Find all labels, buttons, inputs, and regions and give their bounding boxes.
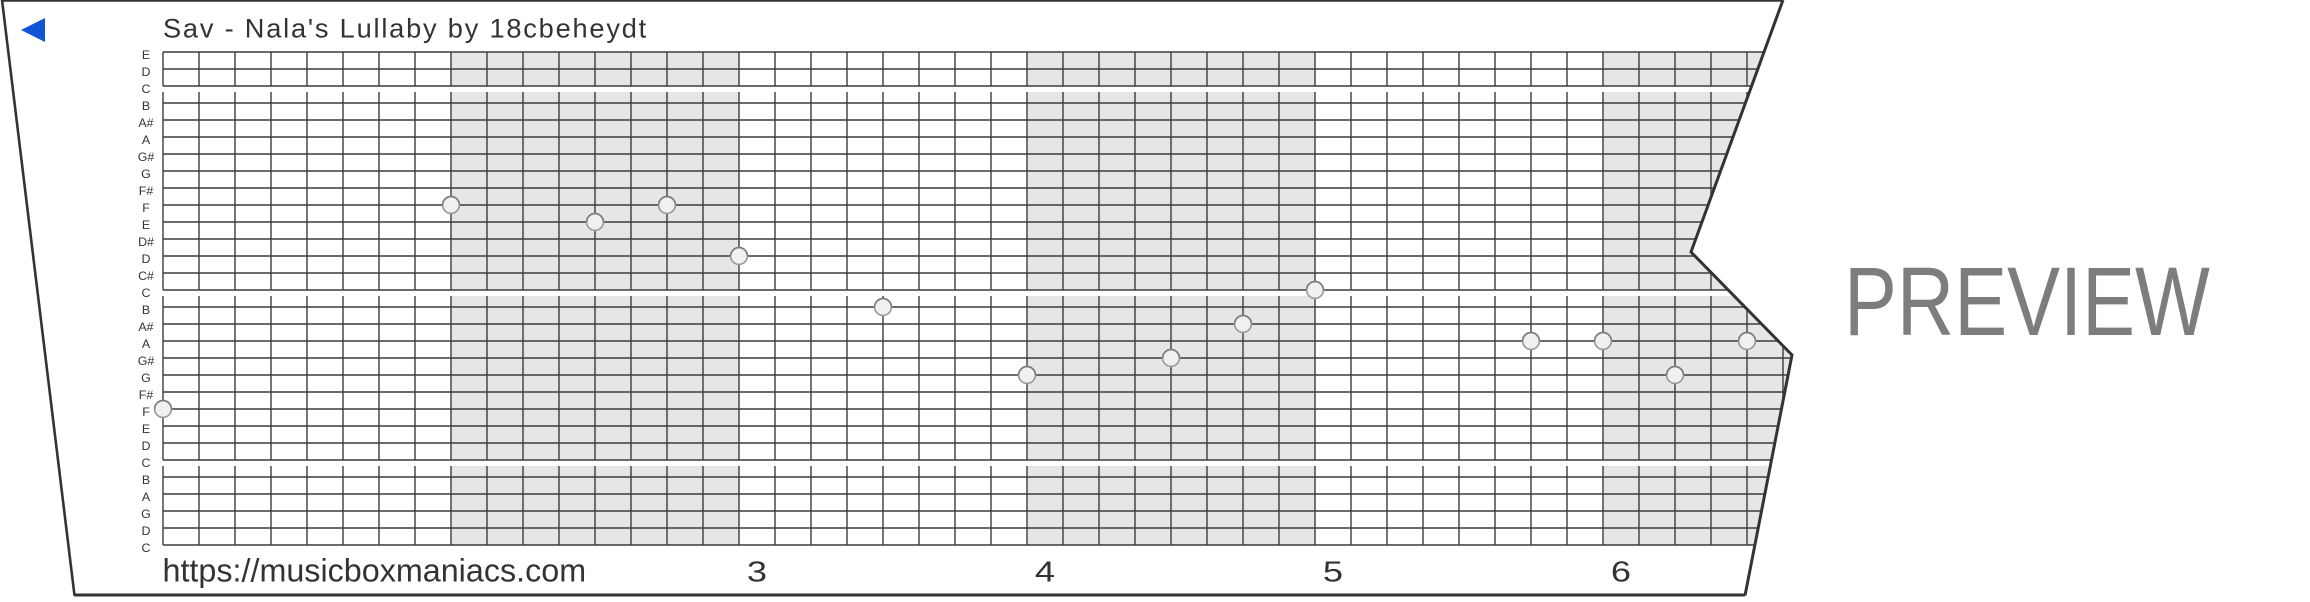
svg-text:G: G	[141, 371, 151, 385]
svg-text:3: 3	[747, 555, 767, 588]
svg-text:4: 4	[1035, 555, 1055, 588]
svg-text:A: A	[142, 337, 151, 351]
svg-text:C: C	[142, 286, 151, 300]
svg-text:https://musicboxmaniacs.com: https://musicboxmaniacs.com	[163, 553, 587, 589]
svg-text:D: D	[142, 252, 151, 266]
svg-text:C: C	[142, 82, 151, 96]
svg-text:D: D	[142, 65, 151, 79]
svg-text:F: F	[142, 201, 150, 215]
svg-text:F#: F#	[139, 184, 154, 198]
svg-text:A: A	[142, 133, 151, 147]
svg-text:D: D	[142, 524, 151, 538]
svg-text:Sav - Nala's Lullaby by 18cbeh: Sav - Nala's Lullaby by 18cbeheydt	[163, 13, 648, 44]
svg-text:C#: C#	[138, 269, 154, 283]
svg-text:B: B	[142, 99, 150, 113]
svg-text:C: C	[142, 541, 151, 555]
svg-text:A: A	[142, 490, 151, 504]
svg-text:E: E	[142, 422, 150, 436]
svg-text:G#: G#	[138, 354, 155, 368]
svg-text:6: 6	[1611, 555, 1631, 588]
svg-text:5: 5	[1323, 555, 1343, 588]
svg-text:E: E	[142, 48, 150, 62]
svg-text:F#: F#	[139, 388, 154, 402]
svg-text:G: G	[141, 167, 151, 181]
svg-text:B: B	[142, 473, 150, 487]
svg-text:D: D	[142, 439, 151, 453]
svg-text:E: E	[142, 218, 150, 232]
svg-text:A#: A#	[138, 320, 153, 334]
svg-text:D#: D#	[138, 235, 154, 249]
svg-text:B: B	[142, 303, 150, 317]
svg-text:C: C	[142, 456, 151, 470]
svg-text:G#: G#	[138, 150, 155, 164]
svg-text:A#: A#	[138, 116, 153, 130]
svg-text:PREVIEW: PREVIEW	[1844, 247, 2210, 356]
svg-text:F: F	[142, 405, 150, 419]
svg-text:G: G	[141, 507, 151, 521]
